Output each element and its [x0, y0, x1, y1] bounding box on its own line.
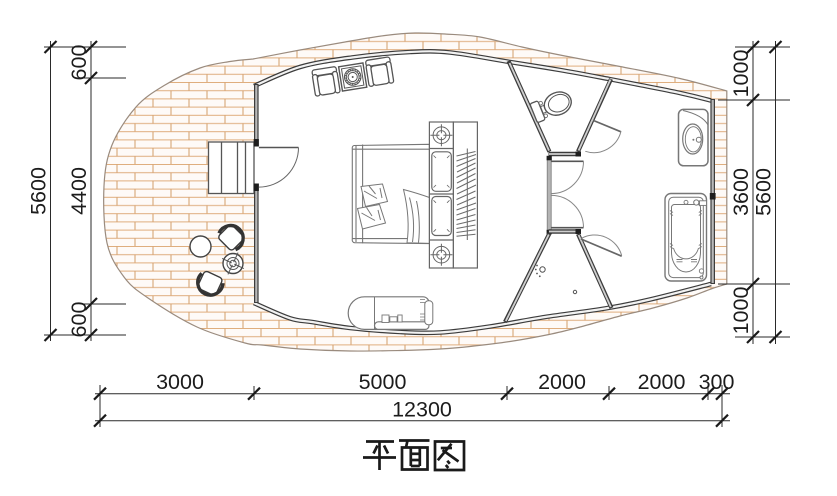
svg-text:600: 600: [67, 45, 91, 81]
svg-text:1000: 1000: [729, 50, 753, 98]
svg-text:4400: 4400: [67, 167, 91, 215]
svg-text:5000: 5000: [359, 370, 407, 394]
svg-text:1000: 1000: [729, 287, 753, 335]
svg-text:600: 600: [67, 302, 91, 338]
svg-text:300: 300: [699, 370, 735, 394]
svg-text:2000: 2000: [538, 370, 586, 394]
svg-text:5600: 5600: [27, 167, 51, 215]
svg-text:2000: 2000: [638, 370, 686, 394]
svg-text:3000: 3000: [156, 370, 204, 394]
svg-text:5600: 5600: [752, 168, 776, 216]
svg-text:12300: 12300: [392, 398, 452, 422]
svg-text:3600: 3600: [729, 168, 753, 216]
